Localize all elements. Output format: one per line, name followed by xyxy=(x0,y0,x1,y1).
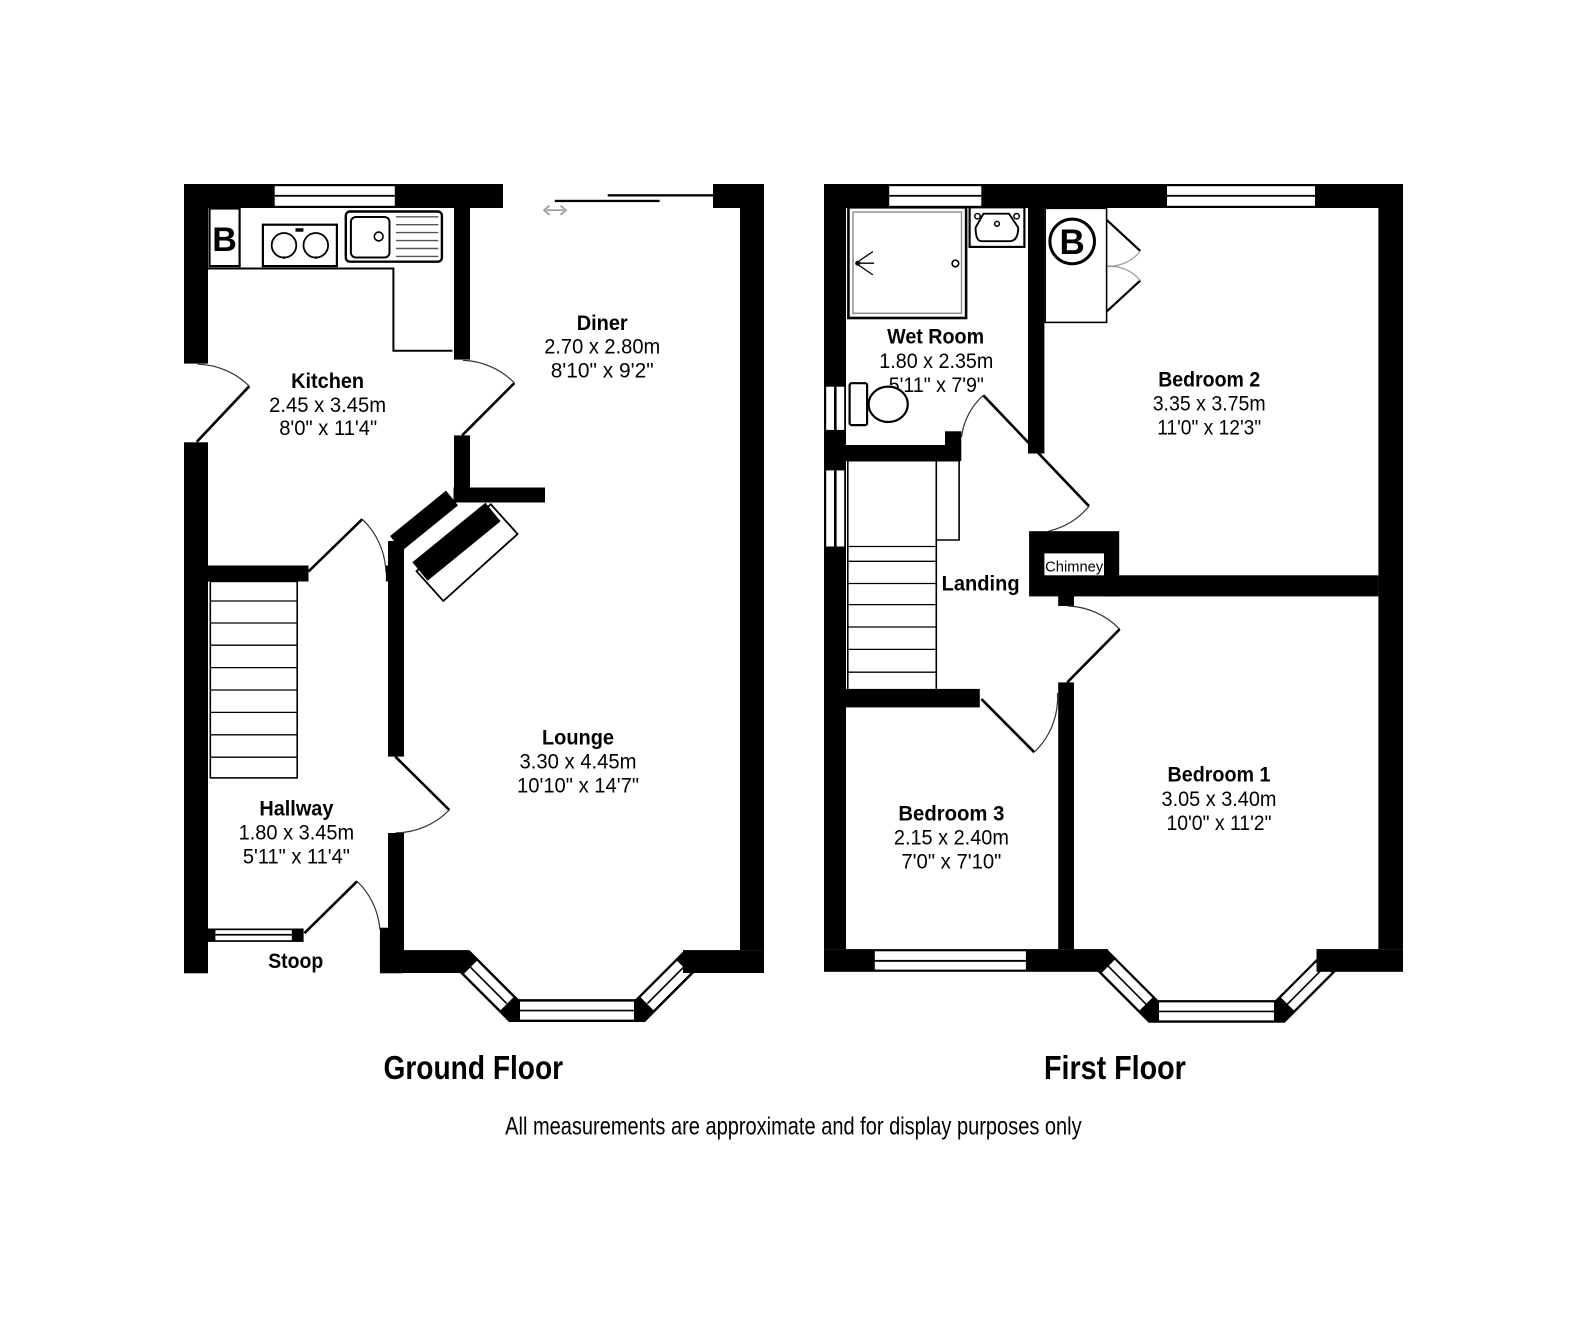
svg-text:All measurements are approxima: All measurements are approximate and for… xyxy=(505,1112,1082,1140)
svg-text:B: B xyxy=(212,221,237,259)
svg-text:1.80 x 2.35m: 1.80 x 2.35m xyxy=(879,350,993,373)
svg-text:Stoop: Stoop xyxy=(268,950,323,973)
svg-text:11'0" x 12'3": 11'0" x 12'3" xyxy=(1157,417,1261,440)
svg-text:2.45 x 3.45m: 2.45 x 3.45m xyxy=(269,394,386,417)
svg-text:Hallway: Hallway xyxy=(259,797,333,820)
svg-text:B: B xyxy=(1060,223,1085,262)
svg-text:Ground Floor: Ground Floor xyxy=(384,1050,564,1087)
svg-text:Bedroom 2: Bedroom 2 xyxy=(1158,369,1260,392)
svg-text:Landing: Landing xyxy=(942,573,1020,596)
svg-text:Kitchen: Kitchen xyxy=(291,370,364,393)
svg-text:Chimney: Chimney xyxy=(1045,560,1104,576)
svg-text:Bedroom 3: Bedroom 3 xyxy=(898,802,1004,825)
svg-text:10'0" x 11'2": 10'0" x 11'2" xyxy=(1167,812,1272,835)
svg-text:7'0" x 7'10": 7'0" x 7'10" xyxy=(901,850,1001,873)
svg-text:Lounge: Lounge xyxy=(542,727,614,750)
svg-text:2.70 x 2.80m: 2.70 x 2.80m xyxy=(544,336,660,359)
svg-text:3.35 x 3.75m: 3.35 x 3.75m xyxy=(1153,393,1266,416)
svg-text:Wet Room: Wet Room xyxy=(887,326,984,349)
svg-text:10'10" x 14'7": 10'10" x 14'7" xyxy=(517,775,639,798)
svg-text:2.15 x 2.40m: 2.15 x 2.40m xyxy=(894,826,1009,849)
svg-text:8'10" x 9'2": 8'10" x 9'2" xyxy=(551,360,654,383)
svg-text:8'0" x 11'4": 8'0" x 11'4" xyxy=(279,417,377,440)
svg-text:1.80 x 3.45m: 1.80 x 3.45m xyxy=(239,821,355,844)
svg-text:First Floor: First Floor xyxy=(1044,1050,1186,1087)
svg-text:3.30 x 4.45m: 3.30 x 4.45m xyxy=(520,751,637,774)
svg-text:5'11" x 11'4": 5'11" x 11'4" xyxy=(243,845,350,868)
svg-text:3.05 x 3.40m: 3.05 x 3.40m xyxy=(1162,788,1277,811)
svg-text:Diner: Diner xyxy=(577,312,628,335)
svg-text:Bedroom 1: Bedroom 1 xyxy=(1168,764,1271,787)
